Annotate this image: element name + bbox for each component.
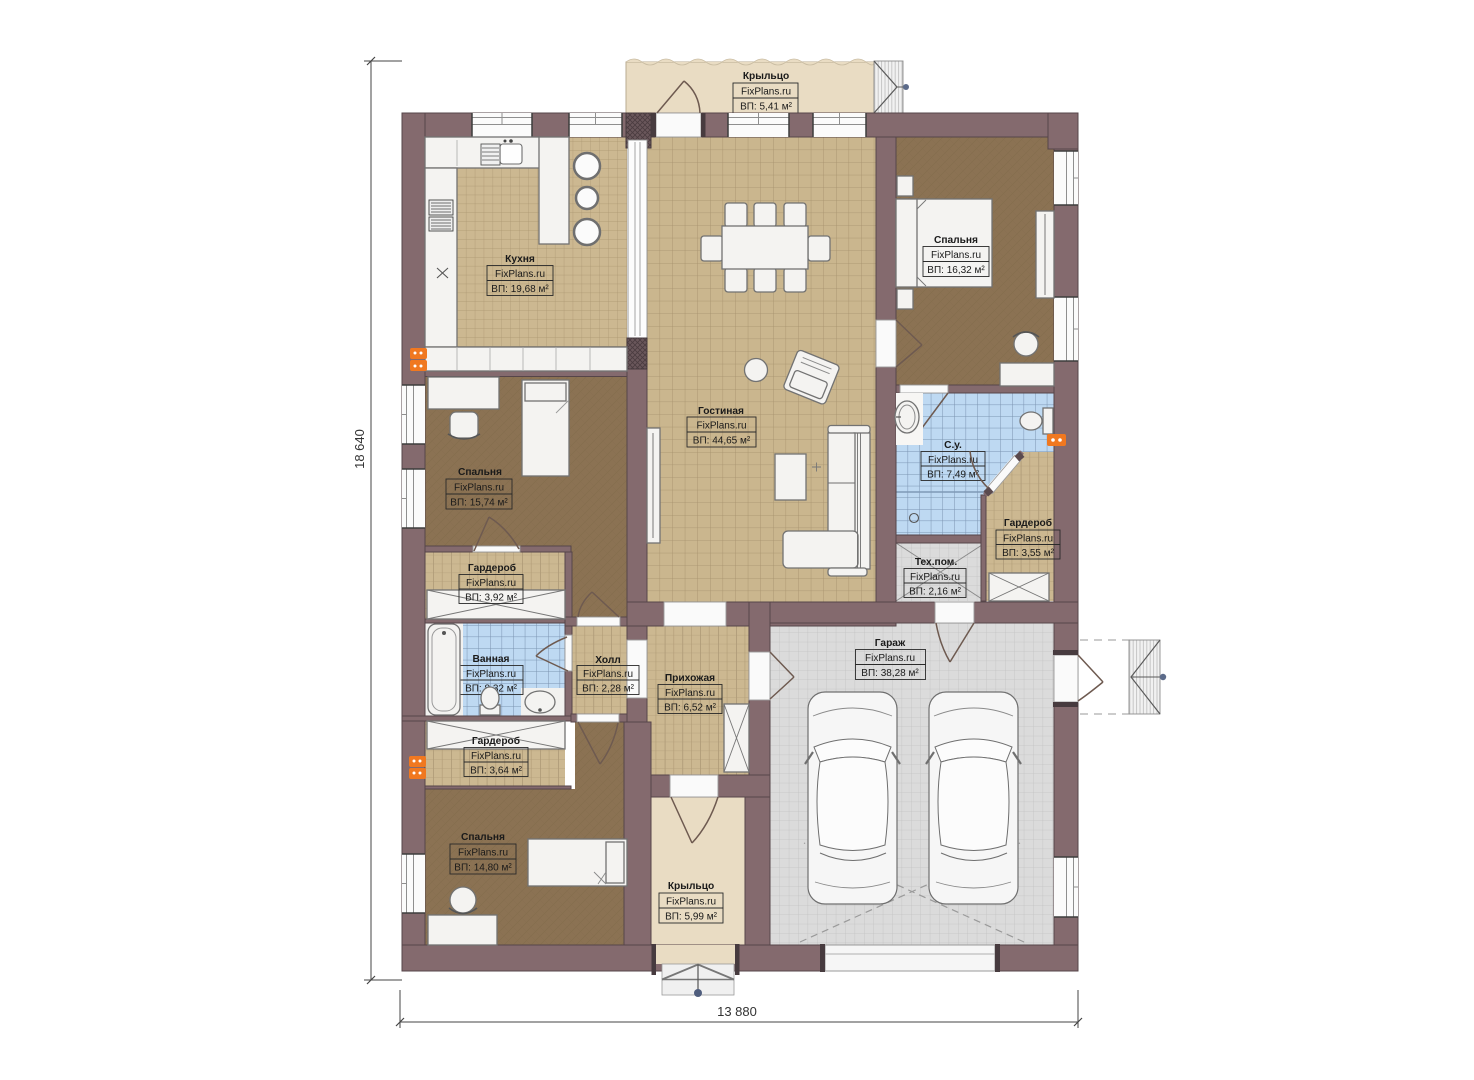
svg-text:ВП: 14,80 м²: ВП: 14,80 м² <box>454 863 512 874</box>
svg-text:Спальня: Спальня <box>458 467 502 478</box>
svg-text:FixPlans.ru: FixPlans.ru <box>665 688 715 699</box>
svg-text:Ванная: Ванная <box>473 654 510 665</box>
svg-text:ВП: 38,28 м²: ВП: 38,28 м² <box>861 668 919 679</box>
svg-text:Кухня: Кухня <box>505 254 535 265</box>
svg-text:Гараж: Гараж <box>875 638 906 649</box>
svg-text:FixPlans.ru: FixPlans.ru <box>466 578 516 589</box>
svg-text:ВП: 2,28 м²: ВП: 2,28 м² <box>582 684 635 695</box>
svg-text:FixPlans.ru: FixPlans.ru <box>741 87 791 98</box>
svg-text:Гардероб: Гардероб <box>1004 517 1052 529</box>
svg-text:FixPlans.ru: FixPlans.ru <box>466 669 516 680</box>
svg-text:Гардероб: Гардероб <box>472 735 520 747</box>
svg-text:ВП: 2,16 м²: ВП: 2,16 м² <box>909 587 962 598</box>
svg-text:Спальня: Спальня <box>934 235 978 246</box>
svg-text:FixPlans.ru: FixPlans.ru <box>471 751 521 762</box>
svg-text:ВП: 6,52 м²: ВП: 6,52 м² <box>664 703 717 714</box>
svg-text:FixPlans.ru: FixPlans.ru <box>454 483 504 494</box>
svg-text:FixPlans.ru: FixPlans.ru <box>495 269 545 280</box>
svg-text:Прихожая: Прихожая <box>665 673 715 684</box>
svg-text:FixPlans.ru: FixPlans.ru <box>696 421 746 432</box>
svg-text:FixPlans.ru: FixPlans.ru <box>865 653 915 664</box>
svg-text:FixPlans.ru: FixPlans.ru <box>666 897 716 908</box>
svg-text:ВП: 3,64 м²: ВП: 3,64 м² <box>470 766 523 777</box>
svg-text:ВП: 7,49 м²: ВП: 7,49 м² <box>927 470 980 481</box>
svg-text:FixPlans.ru: FixPlans.ru <box>1003 534 1053 545</box>
svg-text:Холл: Холл <box>595 655 621 666</box>
svg-text:FixPlans.ru: FixPlans.ru <box>910 572 960 583</box>
svg-text:ВП: 5,99 м²: ВП: 5,99 м² <box>665 912 718 923</box>
svg-text:13 880: 13 880 <box>717 1004 757 1019</box>
svg-text:ВП: 16,32 м²: ВП: 16,32 м² <box>927 265 985 276</box>
svg-text:Спальня: Спальня <box>461 832 505 843</box>
svg-text:ВП: 3,55 м²: ВП: 3,55 м² <box>1002 548 1055 559</box>
svg-text:Гардероб: Гардероб <box>468 562 516 574</box>
svg-text:FixPlans.ru: FixPlans.ru <box>583 669 633 680</box>
svg-text:18 640: 18 640 <box>352 429 367 469</box>
svg-text:ВП: 44,65 м²: ВП: 44,65 м² <box>693 436 751 447</box>
svg-text:FixPlans.ru: FixPlans.ru <box>931 250 981 261</box>
svg-text:Гостиная: Гостиная <box>698 406 744 417</box>
svg-text:FixPlans.ru: FixPlans.ru <box>458 848 508 859</box>
svg-text:Крыльцо: Крыльцо <box>668 881 714 892</box>
svg-text:ВП: 15,74 м²: ВП: 15,74 м² <box>450 498 508 509</box>
svg-text:ВП: 19,68 м²: ВП: 19,68 м² <box>491 284 549 295</box>
svg-text:Тех.пом.: Тех.пом. <box>915 557 958 568</box>
svg-text:ВП: 5,41 м²: ВП: 5,41 м² <box>740 102 793 113</box>
svg-text:Крыльцо: Крыльцо <box>743 71 789 82</box>
svg-text:ВП: 3,92 м²: ВП: 3,92 м² <box>465 593 518 604</box>
svg-text:С.у.: С.у. <box>944 440 962 451</box>
